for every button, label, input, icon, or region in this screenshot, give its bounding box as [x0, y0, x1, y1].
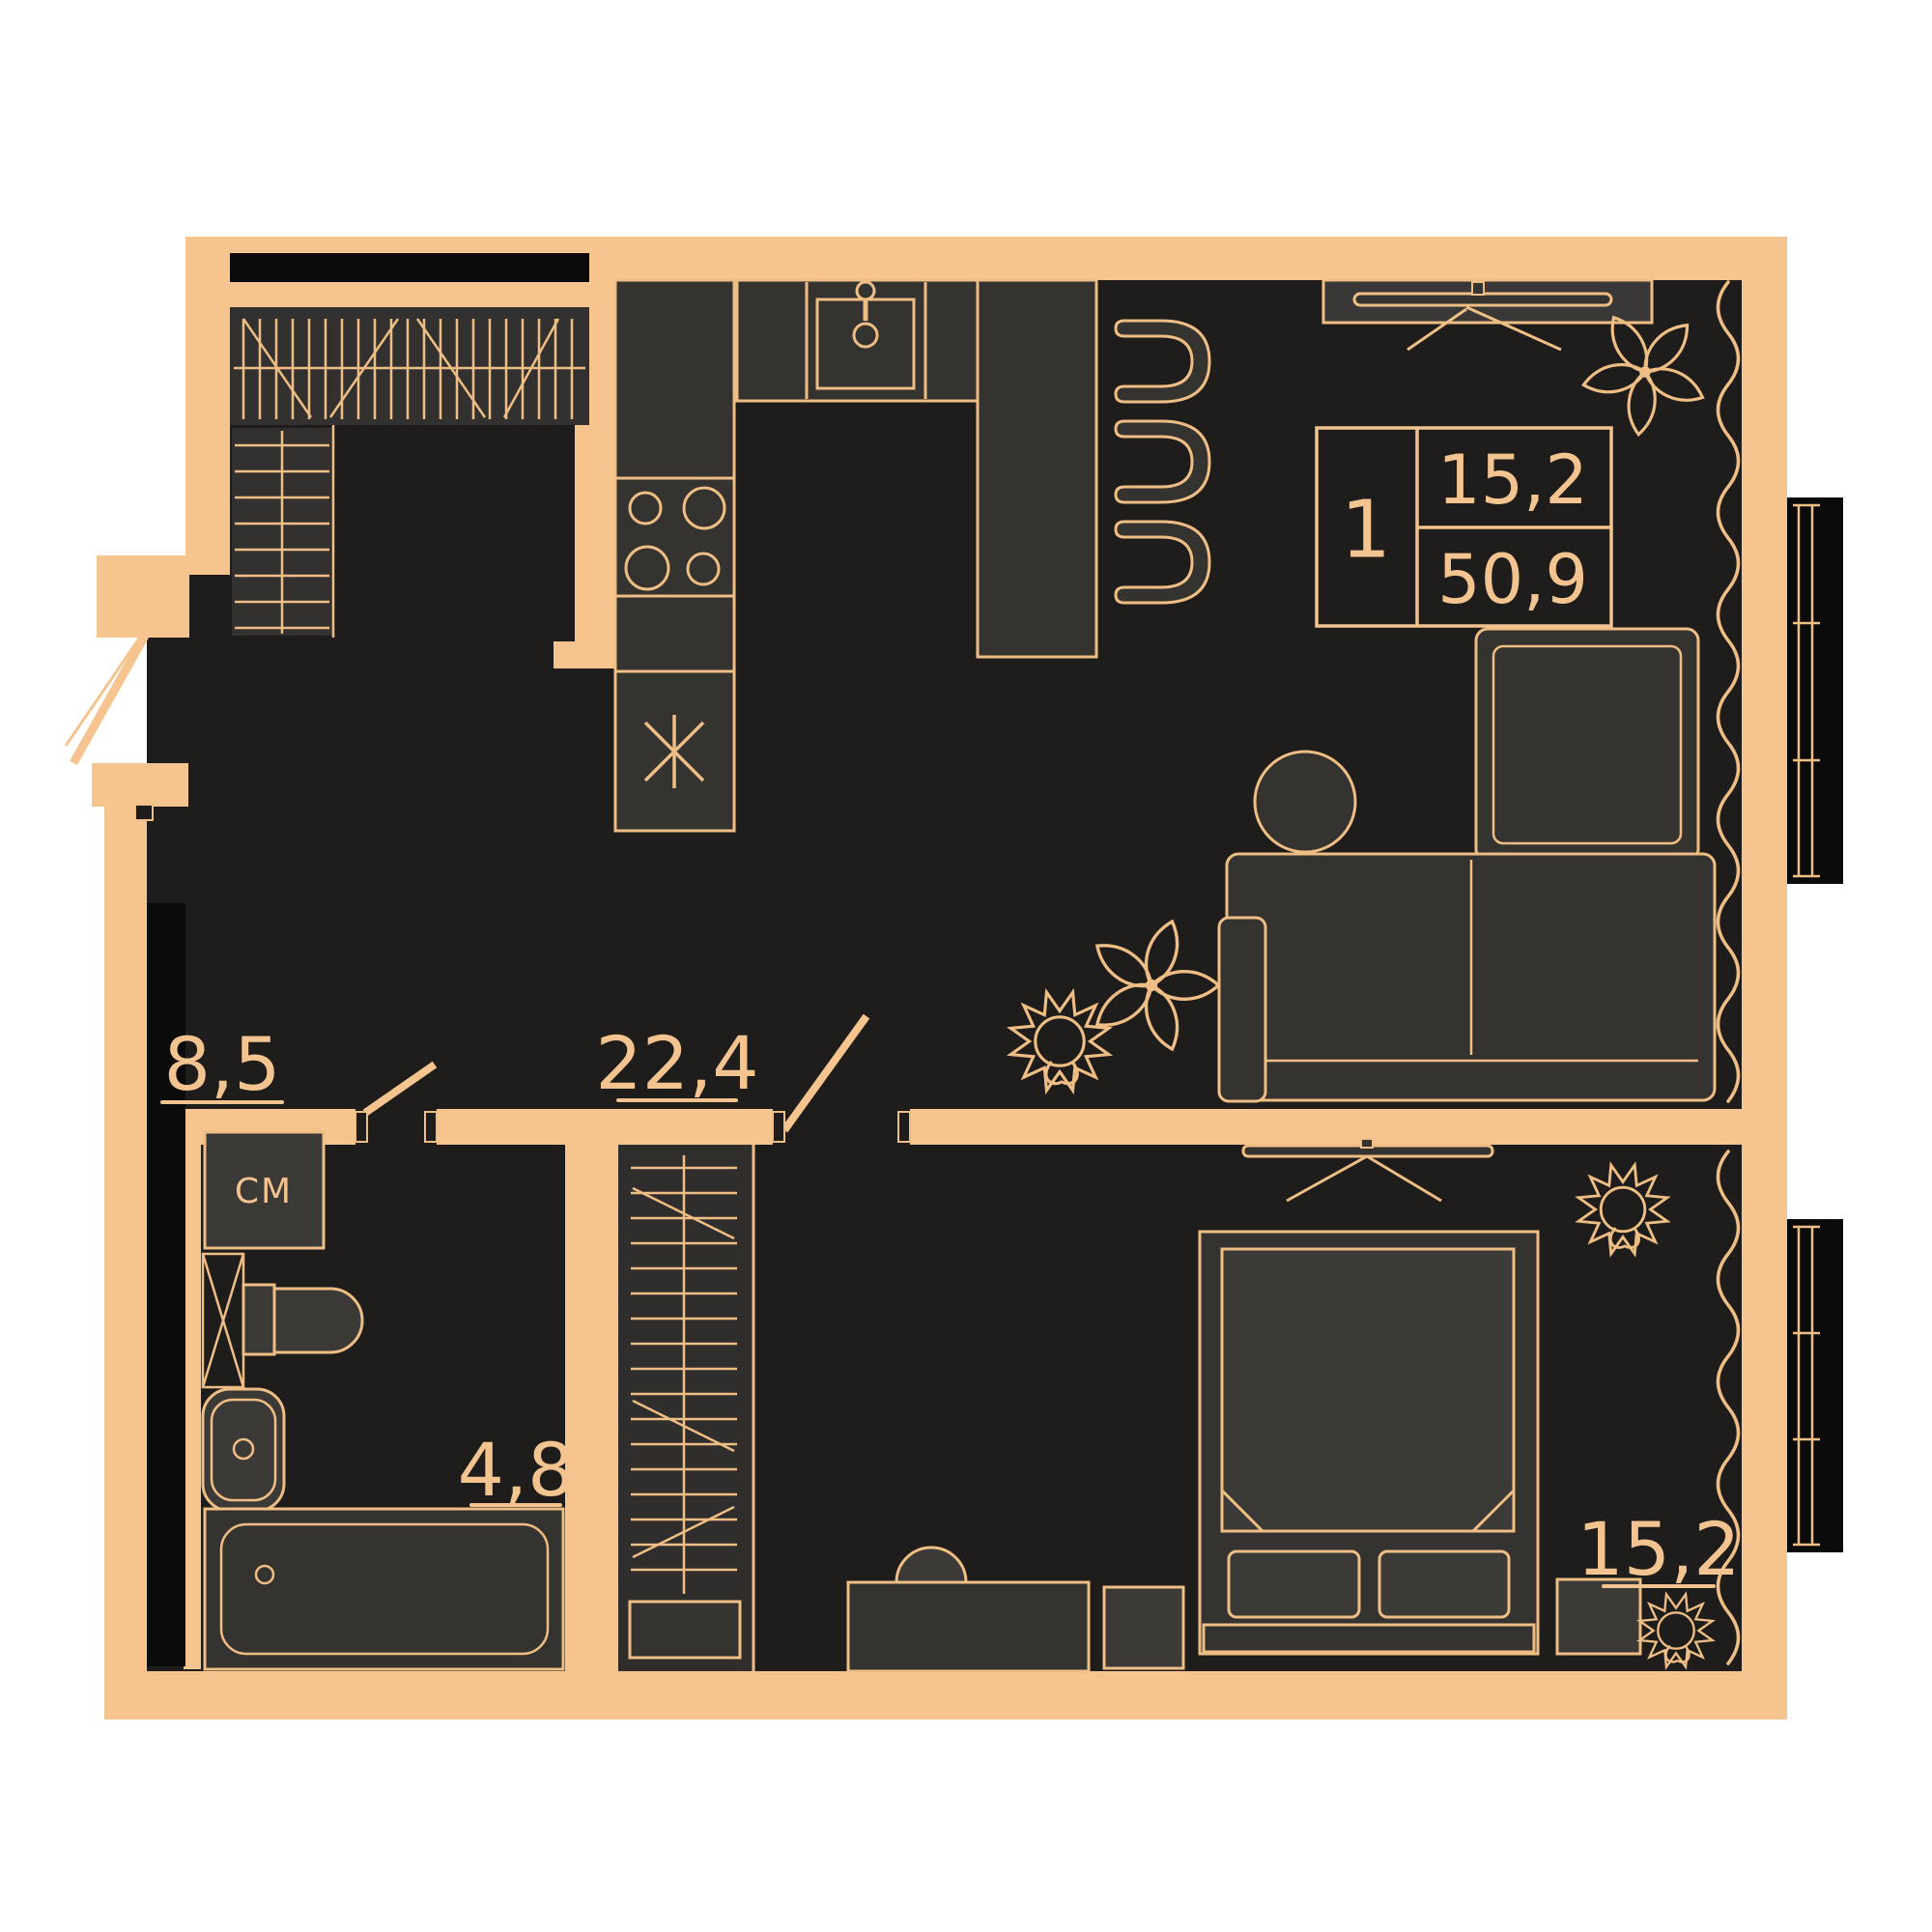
wall-right [1742, 237, 1787, 1719]
bed-pillow-left [1229, 1551, 1359, 1617]
wall-left-upper [185, 237, 230, 575]
wall-mid-c [910, 1109, 1742, 1145]
sofa-armrest [1219, 918, 1265, 1101]
floor-plan: 1 15,2 50,9 [0, 0, 1932, 1932]
wall-bottom [104, 1671, 1787, 1719]
wall-kitchen-foot [554, 641, 577, 668]
wall-vestibule-lower [92, 763, 188, 807]
legend-total-area: 50,9 [1437, 540, 1588, 619]
wall-mid-b [437, 1109, 773, 1145]
corridor-wardrobe [618, 1145, 753, 1671]
faucet-icon [857, 282, 874, 299]
duct-shaft [147, 903, 185, 1666]
legend-rooms-count: 1 [1341, 485, 1391, 577]
kitchen-lower-cabinet [615, 596, 734, 671]
wall-bathroom-vertical [565, 1145, 618, 1671]
wall-bathroom-finish [184, 1143, 201, 1669]
washing-machine-label: СМ [235, 1172, 293, 1211]
entry-wardrobe [230, 307, 589, 425]
wall-left-lower [104, 804, 147, 1719]
coffee-table [1255, 752, 1355, 852]
bathroom-sink [203, 1389, 284, 1511]
entry-shelving-ladder [232, 425, 333, 638]
wall-top-left-extension [230, 280, 589, 307]
hallway-area-label: 8,5 [164, 1021, 281, 1107]
entry-shelf-bar [230, 253, 589, 282]
dining-bar [978, 280, 1096, 657]
toilet [243, 1285, 362, 1354]
bathtub [205, 1509, 563, 1669]
bathroom-area-label: 4,8 [458, 1427, 575, 1513]
bed [1200, 1232, 1538, 1654]
kitchen-living-area-label: 22,4 [595, 1020, 758, 1106]
entrance-door-swing [66, 633, 143, 746]
entrance-door-leaf [73, 636, 145, 763]
window-bedroom [1787, 1219, 1843, 1552]
bedroom-area-label: 15,2 [1577, 1506, 1740, 1592]
window-living [1787, 497, 1843, 884]
nightstand-left [1104, 1587, 1183, 1668]
floor-plan-drawing: 1 15,2 50,9 [0, 0, 1932, 1932]
sofa-chaise [1476, 629, 1698, 861]
legend-living-area: 15,2 [1437, 440, 1588, 520]
kitchen-tall-cabinet [615, 280, 734, 478]
bed-blanket [1222, 1249, 1514, 1531]
bed-headboard [1204, 1625, 1534, 1652]
wall-vestibule-upper [97, 555, 189, 638]
bed-pillow-right [1379, 1551, 1509, 1617]
